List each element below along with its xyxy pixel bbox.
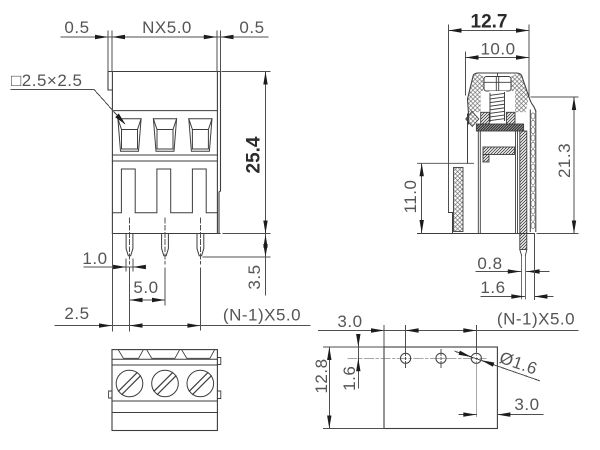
svg-text:NX5.0: NX5.0: [142, 18, 192, 37]
svg-text:0.8: 0.8: [477, 254, 502, 273]
svg-text:12.7: 12.7: [471, 12, 508, 33]
svg-text:Ø1.6: Ø1.6: [497, 348, 540, 379]
svg-text:0.5: 0.5: [64, 18, 89, 37]
svg-text:3.5: 3.5: [245, 264, 264, 289]
svg-text:0.5: 0.5: [239, 18, 264, 37]
svg-text:2.5: 2.5: [64, 304, 89, 323]
svg-text:1.0: 1.0: [82, 249, 107, 268]
svg-text:12.8: 12.8: [312, 358, 331, 393]
svg-text:3.0: 3.0: [337, 312, 362, 331]
svg-text:10.0: 10.0: [480, 40, 515, 59]
svg-text:3.0: 3.0: [514, 395, 539, 414]
svg-text:□2.5×2.5: □2.5×2.5: [11, 71, 82, 90]
svg-text:1.6: 1.6: [480, 278, 505, 297]
svg-text:11.0: 11.0: [401, 180, 420, 214]
svg-text:21.3: 21.3: [555, 143, 574, 178]
svg-text:25.4: 25.4: [244, 136, 265, 173]
svg-text:(N-1)X5.0: (N-1)X5.0: [223, 306, 301, 325]
svg-text:5.0: 5.0: [133, 278, 158, 297]
svg-text:1.6: 1.6: [340, 366, 359, 391]
svg-text:(N-1)X5.0: (N-1)X5.0: [497, 310, 575, 329]
